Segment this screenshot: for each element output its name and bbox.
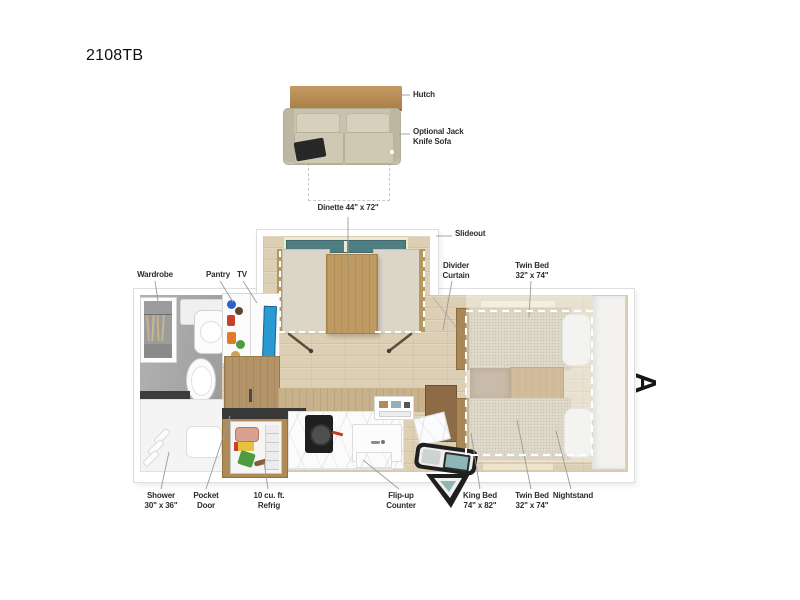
wardrobe [140,297,177,363]
pantry-item [235,307,243,315]
shower-shelf [142,450,160,468]
burner-icon [310,424,332,446]
flip-up-counter [356,452,392,468]
sofa-button [390,150,394,154]
callout-shower: Shower 30" x 36" [145,491,178,511]
sink-bowl [200,321,222,343]
tv [262,306,277,358]
callout-wardrobe: Wardrobe [137,270,173,280]
callout-dinette: Dinette 44" x 72" [317,203,378,213]
sofa-back-cushion [296,113,340,134]
callout-nightstand: Nightstand [553,491,593,501]
sofa-armrest [284,109,294,162]
pantry [222,293,252,364]
callout-optional-sofa: Optional Jack Knife Sofa [413,127,464,147]
direction-marker-a: A [628,365,662,401]
callout-slideout: Slideout [455,229,485,239]
pocket-door-handle [249,389,252,402]
dinette-table [326,254,378,334]
faucet-dot [381,440,385,444]
callout-twin-bed-top: Twin Bed 32" x 74" [515,261,549,281]
shower [140,399,224,472]
dish-item [404,402,410,408]
window-sill [482,463,554,471]
callout-refrigerator: 10 cu. ft. Refrig [254,491,285,511]
wardrobe-shelf [144,344,172,358]
toilet [186,358,216,402]
dinette-bench-right [373,249,421,334]
faucet-icon [371,441,380,444]
stove [305,415,333,453]
pantry-item [227,332,236,344]
callout-divider-curtain: Divider Curtain [443,261,470,281]
sofa-seat-cushion [344,132,394,164]
dinette-projection [308,163,390,201]
pantry-item [236,340,245,349]
callout-hutch: Hutch [413,90,435,100]
toilet-seat [191,366,212,396]
callout-king-bed: King Bed 74" x 82" [463,491,497,511]
dinette-bench-left [282,249,330,334]
callout-pantry: Pantry [206,270,230,280]
dish-shelf [374,396,414,420]
sofa-back-cushion [346,113,390,134]
divider-curtain [466,294,592,462]
bed-platform [592,296,625,469]
fridge-door-shelves [265,425,279,470]
model-title: 2108TB [86,47,143,65]
shower-basin [186,426,222,458]
callout-twin-bed-bottom: Twin Bed 32" x 74" [515,491,549,511]
dish-item [379,401,388,408]
callout-pocket-door: Pocket Door [193,491,218,511]
fridge-food-bag [237,450,256,468]
entry-door-inner [421,449,441,465]
dish-item [379,411,411,417]
callout-flip-up-counter: Flip-up Counter [386,491,416,511]
dinette-bench-trim [419,249,425,332]
refrigerator [230,421,282,474]
entry-door-mat [443,452,471,472]
fridge-food-box [234,442,254,451]
tv-cabinet [250,293,280,365]
callout-tv: TV [237,270,247,280]
vanity-counter-dark [140,391,190,399]
pantry-item [227,315,235,326]
dish-item [391,401,401,408]
jack-knife-sofa [283,108,401,165]
fridge-food-meat [235,427,259,442]
pantry-item [227,300,236,309]
window-mullion [344,241,347,252]
floorplan-canvas: 2108TB [0,0,800,600]
